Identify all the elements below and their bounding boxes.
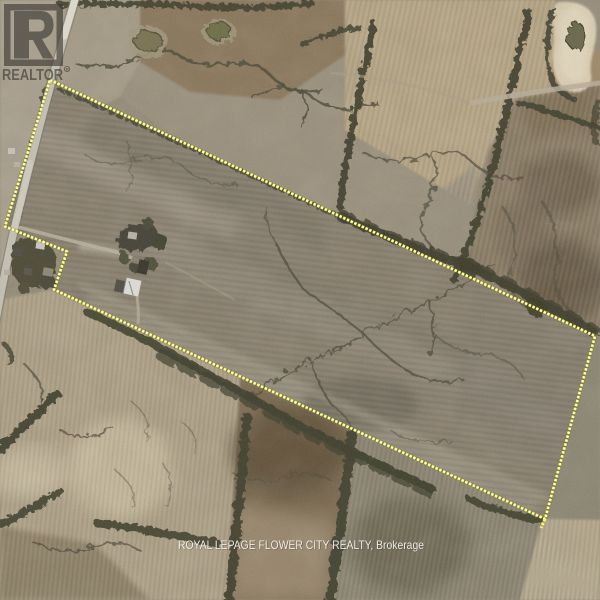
svg-text:REALTOR: REALTOR	[2, 67, 63, 84]
svg-text:ROYAL LEPAGE FLOWER CITY REALT: ROYAL LEPAGE FLOWER CITY REALTY, Brokera…	[178, 538, 424, 552]
